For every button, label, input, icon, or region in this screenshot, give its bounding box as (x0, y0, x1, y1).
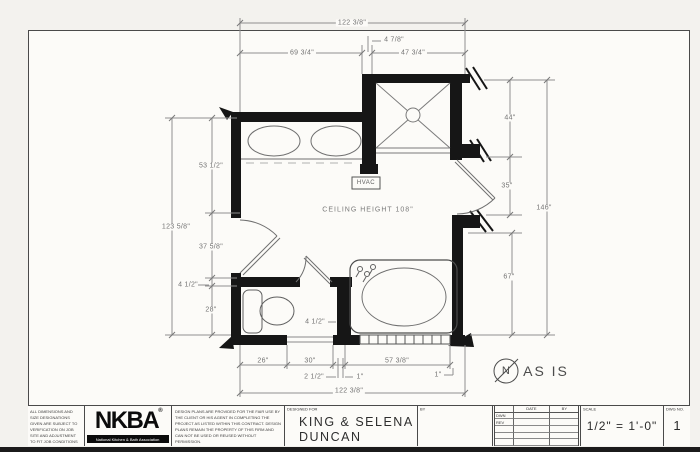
dim-label-bottom-2: 30" (302, 358, 317, 365)
vanity-sink-right (311, 126, 361, 156)
revision-table: DATE BY DWN REV (495, 406, 578, 446)
floor-plan-drawing (0, 0, 700, 452)
disclaimer-center-text: DESIGN PLANS ARE PROVIDED FOR THE FAIR U… (175, 409, 281, 445)
window (360, 335, 450, 344)
scale-label: SCALE (583, 407, 596, 412)
cased-opening (287, 337, 333, 342)
dim-label-top-right: 47 3/4" (399, 50, 427, 57)
client-name: KING & SELENA DUNCAN (299, 415, 417, 445)
dim-label-left-upper: 53 1/2" (197, 163, 225, 170)
dim-label-left-small: 4 1/2" (178, 282, 198, 289)
dim-label-bottom-small-2: 1" (357, 374, 364, 381)
bathtub-faucet (356, 265, 376, 283)
vanity-sink-left (248, 126, 300, 156)
scan-edge (0, 447, 700, 452)
nkba-logo-banner: National Kitchen & Bath Association (87, 435, 169, 443)
shower (376, 83, 450, 153)
row-revised-label: REV (495, 420, 504, 425)
scale-value: 1/2" = 1'-0" (581, 419, 663, 433)
nkba-logo-acronym: NKBA® (95, 408, 161, 433)
row-drawn-label: DWN (495, 413, 506, 418)
title-block: ALL DIMENSIONS AND SIZE DESIGNATIONS GIV… (28, 405, 690, 446)
date-header: DATE (526, 407, 536, 412)
designed-for-cell: DESIGNED FOR KING & SELENA DUNCAN (285, 406, 418, 446)
vanity (241, 126, 362, 163)
bathtub-basin (362, 268, 446, 326)
dim-label-tub-wall: 4 1/2" (305, 319, 325, 326)
disclaimer-left-text: ALL DIMENSIONS AND SIZE DESIGNATIONS GIV… (30, 409, 82, 445)
by-header: BY (561, 407, 566, 412)
dim-label-bottom-small-1: 2 1/2" (304, 374, 324, 381)
drawing-sheet: 122 3/8" 4 7/8" 69 3/4" 47 3/4" 44" 35" … (0, 0, 700, 452)
north-letter: N (502, 365, 510, 377)
scale-cell: SCALE 1/2" = 1'-0" (578, 406, 664, 446)
as-is-note: AS IS (523, 363, 569, 379)
toilet (243, 290, 294, 333)
drawing-number-cell: DWG NO. 1 (664, 406, 690, 446)
dwg-no-value: 1 (664, 418, 690, 433)
dim-label-right-total: 146" (534, 205, 553, 212)
dim-label-top-offset: 4 7/8" (384, 37, 404, 44)
bathtub (350, 260, 457, 333)
dim-label-bottom-3: 57 3/8" (383, 358, 411, 365)
registered-mark: ® (158, 408, 161, 414)
nkba-logo: NKBA® National Kitchen & Bath Associatio… (85, 406, 172, 446)
designed-for-label: DESIGNED FOR (287, 407, 317, 412)
dim-label-top-total: 122 3/8" (336, 20, 368, 27)
dwg-no-label: DWG NO. (666, 407, 684, 412)
dim-label-right-upper: 44" (502, 115, 517, 122)
shower-drain (406, 108, 420, 122)
dim-label-bottom-small-3: 1" (435, 372, 442, 379)
revision-table-cell: DATE BY DWN REV (492, 406, 578, 446)
dim-label-right-lower: 67" (501, 274, 516, 281)
dim-label-left-mid: 37 5/8" (197, 244, 225, 251)
dim-label-bottom-1: 26" (255, 358, 270, 365)
by-label: BY (420, 407, 425, 412)
hvac-label: HVAC (357, 180, 375, 186)
disclaimer-left-cell: ALL DIMENSIONS AND SIZE DESIGNATIONS GIV… (28, 406, 85, 446)
ceiling-height-note: CEILING HEIGHT 108" (322, 207, 413, 214)
toilet-tank (243, 290, 262, 333)
dim-label-right-mid: 35" (499, 183, 514, 190)
disclaimer-center-cell: DESIGN PLANS ARE PROVIDED FOR THE FAIR U… (172, 406, 285, 446)
dim-label-top-left: 69 3/4" (288, 50, 316, 57)
dim-label-bottom-total: 122 3/8" (333, 388, 365, 395)
dim-label-left-lower: 28" (203, 307, 218, 314)
by-cell: BY (418, 406, 492, 446)
toilet-bowl (260, 297, 294, 325)
dim-label-left-total: 123 5/8" (160, 224, 192, 231)
